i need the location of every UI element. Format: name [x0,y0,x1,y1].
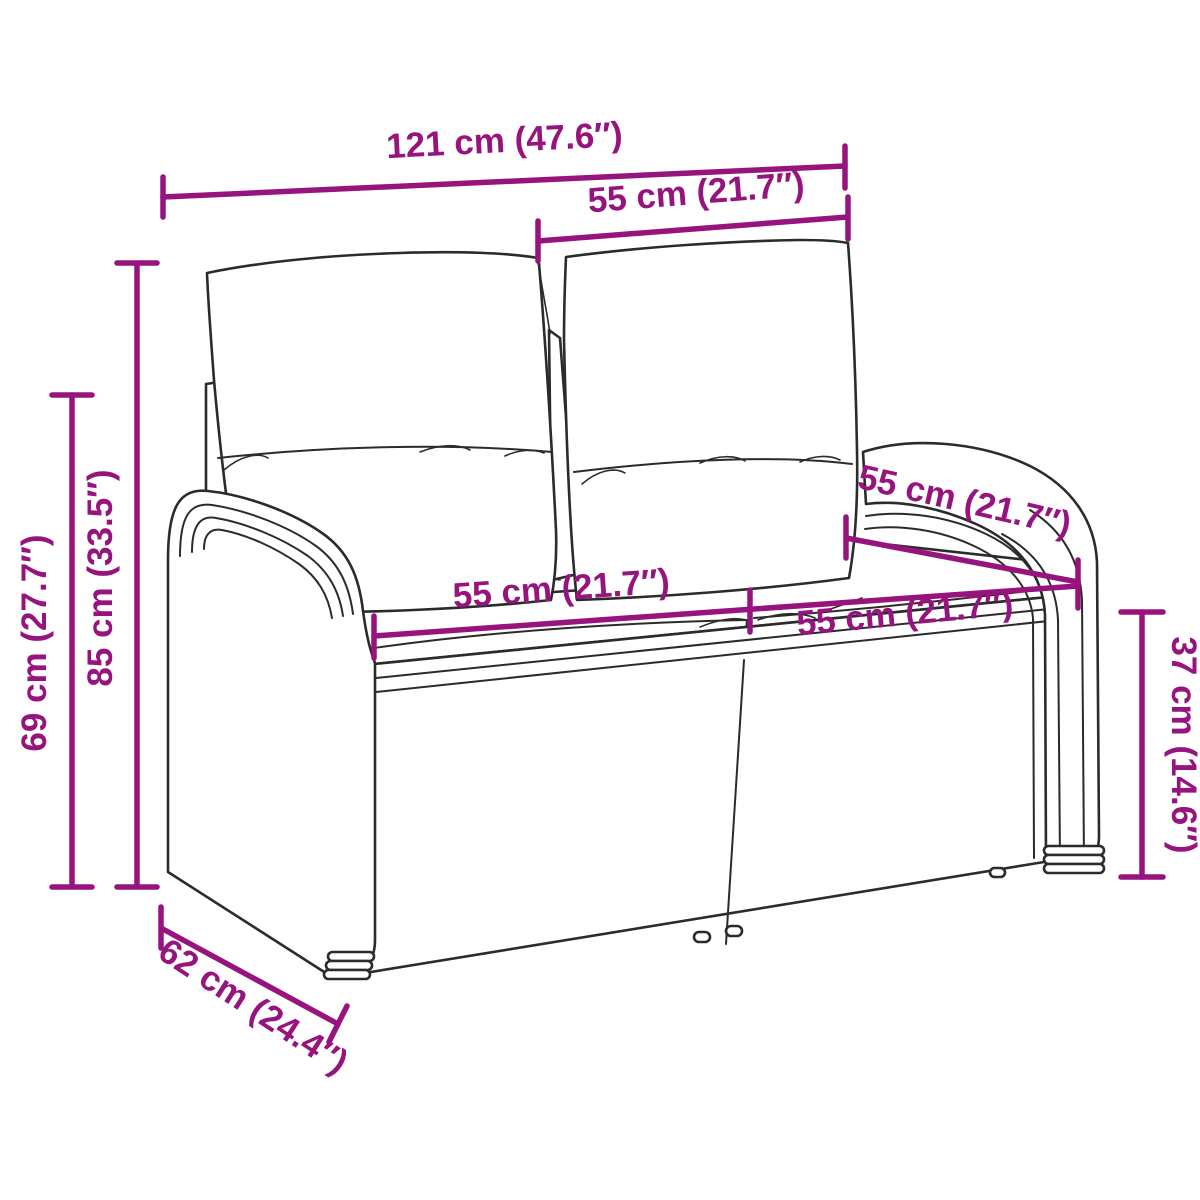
left-armrest [168,491,375,977]
dim-seat-height: 37 cm (14.6″) [1121,612,1200,877]
dim-seat-height-label: 37 cm (14.6″) [1164,636,1200,853]
dim-width-total-label: 121 cm (47.6″) [385,115,623,166]
dim-height-total-label: 85 cm (33.5″) [81,469,120,686]
back-cushion-right [538,240,857,600]
dim-height-total: 85 cm (33.5″) [81,263,157,887]
product-dimension-diagram: 121 cm (47.6″) 55 cm (21.7″) 85 cm (33.5… [0,0,1200,1200]
dim-armrest-height-label: 69 cm (27.7″) [15,534,54,751]
dim-backrest-section-width-label: 55 cm (21.7″) [586,165,806,221]
dimension-diagram-page: 121 cm (47.6″) 55 cm (21.7″) 85 cm (33.5… [0,0,1200,1200]
